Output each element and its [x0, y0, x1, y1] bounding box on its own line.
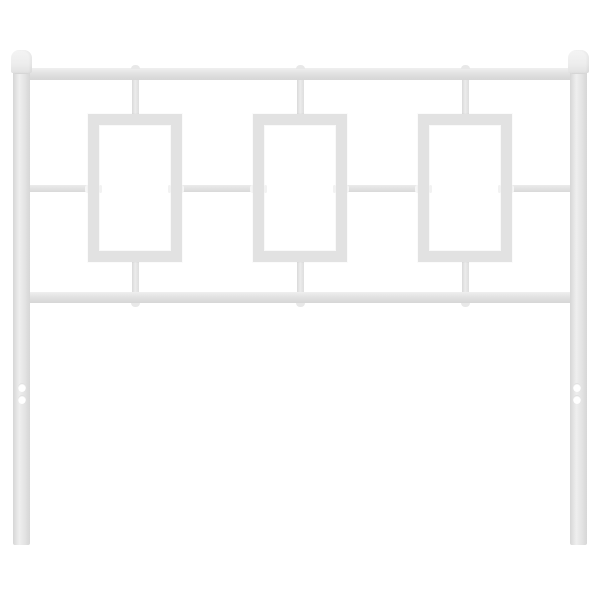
crossbar-segment-2	[182, 185, 253, 192]
left-leg-hole-top	[18, 383, 26, 392]
top-rail-weld-bump-3	[461, 65, 470, 69]
frame3-inner-nub-right	[498, 185, 501, 193]
top-connector-3	[462, 80, 469, 114]
headboard-product-photo	[0, 0, 600, 600]
right-finial	[568, 50, 589, 73]
bottom-rail-weld-bump-1	[131, 303, 140, 307]
top-rail-weld-bump-1	[131, 65, 140, 69]
crossbar-segment-3	[347, 185, 418, 192]
bottom-rail-weld-bump-2	[296, 303, 305, 307]
top-rail	[30, 68, 570, 80]
right-post	[570, 71, 587, 545]
bottom-connector-1	[132, 262, 139, 292]
crossbar-segment-4	[512, 185, 570, 192]
crossbar-segment-1	[30, 185, 88, 192]
bottom-connector-2	[297, 262, 304, 292]
right-leg-hole-top	[573, 383, 581, 392]
left-finial	[11, 50, 32, 73]
top-rail-weld-bump-2	[296, 65, 305, 69]
top-connector-2	[297, 80, 304, 114]
frame2-inner-nub-left	[264, 185, 267, 193]
top-connector-1	[132, 80, 139, 114]
frame2-inner-nub-right	[333, 185, 336, 193]
frame1-inner-nub-left	[99, 185, 102, 193]
left-post	[13, 71, 30, 545]
frame3-inner-nub-left	[429, 185, 432, 193]
bottom-rail-weld-bump-3	[461, 303, 470, 307]
frame1-inner-nub-right	[168, 185, 171, 193]
bottom-connector-3	[462, 262, 469, 292]
right-leg-hole-bottom	[573, 395, 581, 404]
left-leg-hole-bottom	[18, 395, 26, 404]
bottom-rail	[30, 292, 570, 303]
